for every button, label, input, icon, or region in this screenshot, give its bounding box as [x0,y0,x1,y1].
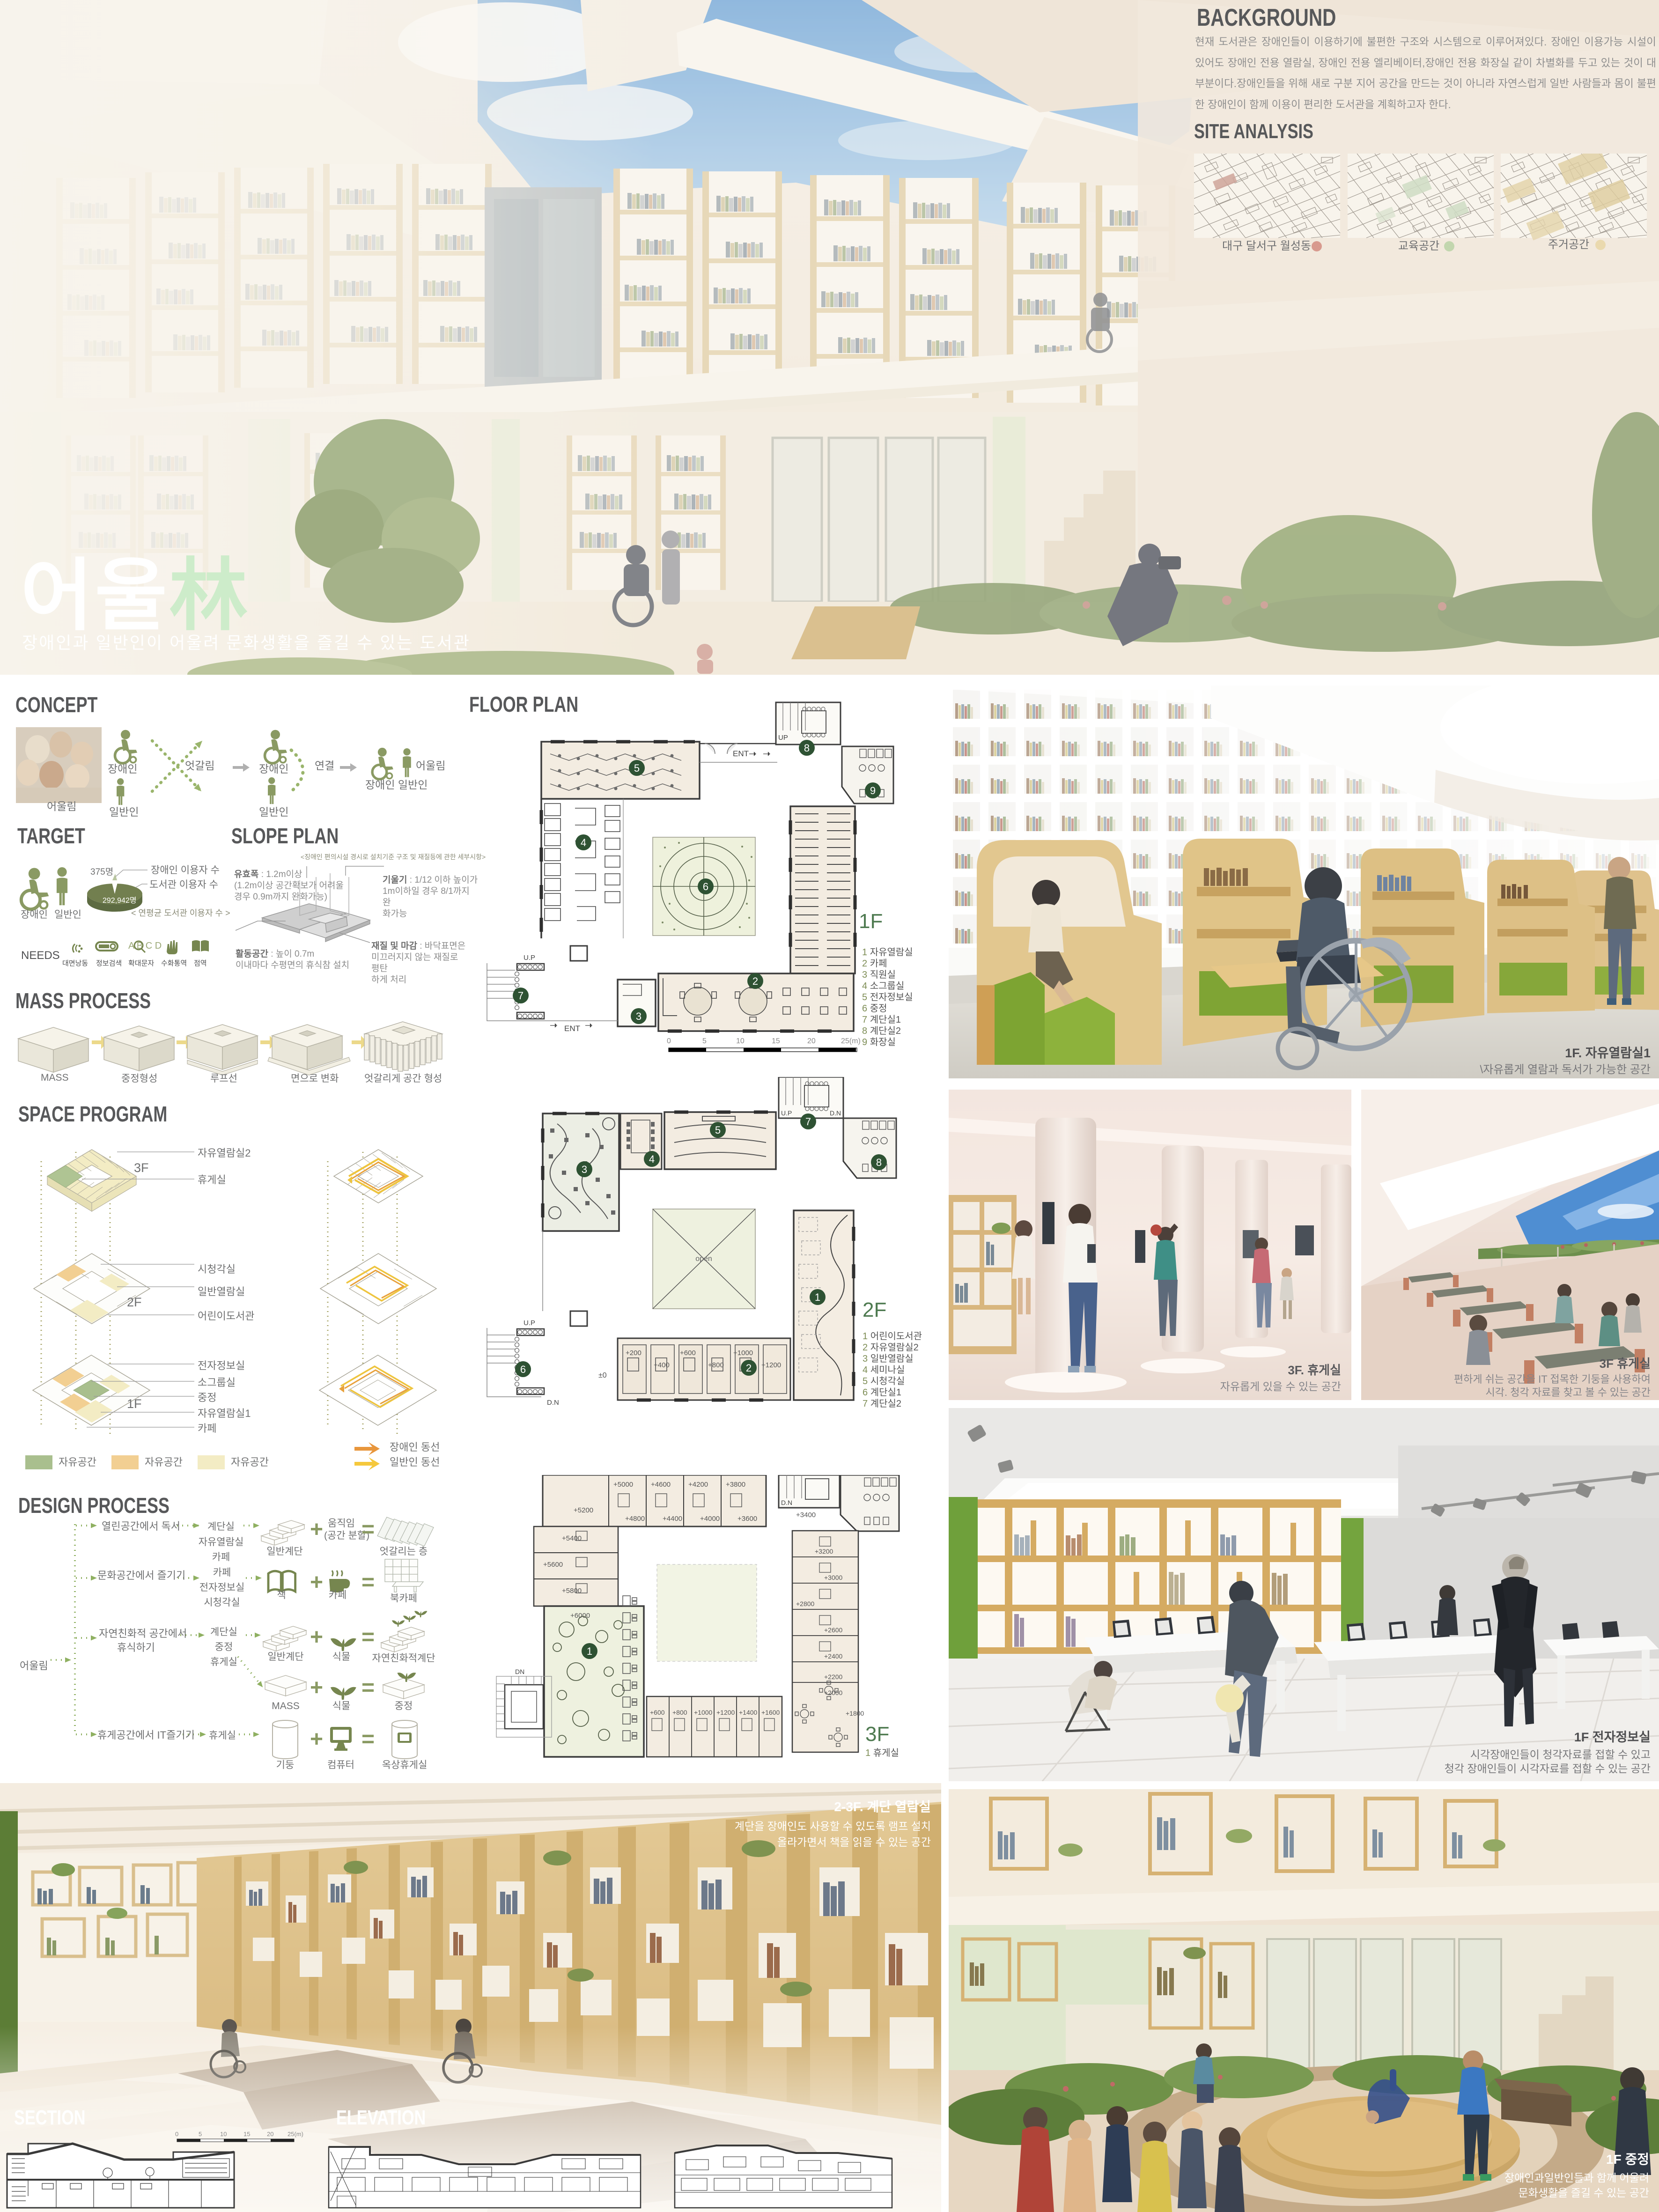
svg-text:+3600: +3600 [737,1515,757,1523]
svg-text:3F: 3F [865,1723,889,1746]
svg-text:9 화장실: 9 화장실 [862,1037,896,1047]
svg-text:휴식하기: 휴식하기 [117,1642,155,1653]
svg-text:어울림: 어울림 [416,759,445,772]
svg-text:375명: 375명 [90,867,113,877]
svg-text:+1800: +1800 [846,1710,864,1717]
svg-text:+1400: +1400 [739,1709,758,1716]
svg-text:열린공간에서 독서: 열린공간에서 독서 [102,1520,180,1532]
svg-text:3: 3 [636,1010,641,1022]
svg-text:10: 10 [220,2131,227,2138]
svg-text:+2600: +2600 [824,1626,843,1634]
svg-text:+200: +200 [626,1349,641,1357]
svg-text:+5000: +5000 [613,1481,633,1489]
svg-text:시청각실: 시청각실 [204,1597,240,1608]
svg-text:자연친화적계단: 자연친화적계단 [372,1653,435,1664]
svg-text:움직임: 움직임 [328,1518,355,1529]
svg-text:+4600: +4600 [651,1481,671,1489]
svg-text:+2800: +2800 [796,1600,815,1607]
svg-text:자연친화적 공간에서: 자연친화적 공간에서 [99,1628,187,1639]
svg-text:계단실: 계단실 [207,1521,235,1532]
svg-text:+: + [310,1625,323,1650]
svg-text:+600: +600 [650,1709,665,1716]
svg-text:< 연평균 도서관 이용자 수 >: < 연평균 도서관 이용자 수 > [131,908,230,918]
svg-text:중정형성: 중정형성 [121,1073,157,1084]
svg-text:장애인: 장애인 [21,909,48,920]
svg-text:식물: 식물 [332,1652,351,1662]
svg-text:중정: 중정 [198,1392,216,1403]
svg-text:2-3F. 계단 열람실: 2-3F. 계단 열람실 [834,1799,931,1814]
svg-text:4 소그룹실: 4 소그룹실 [862,981,904,991]
svg-text:NEEDS: NEEDS [21,949,60,962]
svg-text:연결: 연결 [315,759,334,772]
svg-text:계단을 장애인도 사용할 수 있도록 램프 설치: 계단을 장애인도 사용할 수 있도록 램프 설치 [735,1820,931,1832]
svg-text:+4800: +4800 [625,1515,645,1523]
svg-text:카페: 카페 [198,1423,216,1434]
svg-text:3: 3 [582,1164,587,1175]
svg-text:자유롭게 있을 수 있는 공간: 자유롭게 있을 수 있는 공간 [1220,1380,1341,1393]
svg-text:엇갈림: 엇갈림 [185,759,214,772]
svg-text:2F: 2F [863,1298,886,1321]
svg-text:+: + [310,1727,323,1752]
svg-text:일반인: 일반인 [54,909,81,920]
svg-text:25(m): 25(m) [288,2131,303,2138]
svg-text:4: 4 [581,837,586,848]
svg-text:어린이도서관: 어린이도서관 [198,1310,254,1322]
svg-text:5: 5 [715,1124,721,1136]
svg-text:올라가면서 책을 읽을 수 있는 공간: 올라가면서 책을 읽을 수 있는 공간 [777,1836,931,1848]
svg-text:엇갈리는 층: 엇갈리는 층 [380,1546,428,1557]
svg-text:3 일반열람실: 3 일반열람실 [863,1353,914,1364]
svg-text:정보검색: 정보검색 [96,959,122,967]
svg-text:5: 5 [634,762,640,774]
svg-text:A B C D: A B C D [128,941,162,951]
svg-text:+1600: +1600 [761,1709,780,1716]
svg-text:MASS: MASS [41,1072,69,1083]
svg-text:+400: +400 [654,1361,670,1369]
svg-text:장애인: 장애인 [108,763,137,775]
svg-text:7: 7 [805,1116,811,1128]
svg-text:8 계단실2: 8 계단실2 [862,1025,901,1036]
svg-text:+2200: +2200 [824,1673,843,1681]
svg-text:문화공간에서 즐기기: 문화공간에서 즐기기 [97,1570,185,1581]
svg-text:자유공간: 자유공간 [59,1456,96,1468]
svg-text:어울림: 어울림 [47,800,76,812]
svg-text:0: 0 [175,2131,178,2138]
svg-text:6: 6 [703,881,708,892]
svg-text:1: 1 [587,1645,592,1657]
svg-text:1F 중정: 1F 중정 [1606,2152,1649,2167]
svg-text:식물: 식물 [332,1701,351,1711]
svg-text:=: = [361,1570,375,1595]
svg-text:일반인: 일반인 [259,806,288,818]
svg-text:1F. 자유열람실1: 1F. 자유열람실1 [1565,1046,1651,1060]
svg-text:20: 20 [267,2131,273,2138]
svg-text:2: 2 [752,975,758,987]
svg-text:어울림: 어울림 [20,1660,48,1672]
svg-text:+: + [310,1675,323,1700]
svg-text:20: 20 [807,1037,816,1045]
svg-text:3F: 3F [134,1161,149,1175]
svg-text:5: 5 [199,2131,202,2138]
svg-text:+5800: +5800 [562,1587,582,1595]
svg-text:\자유롭게 열람과 독서가 가능한 공간: \자유롭게 열람과 독서가 가능한 공간 [1480,1063,1651,1076]
svg-text:6: 6 [520,1364,526,1375]
svg-text:U.P: U.P [781,1109,792,1117]
svg-text:자유열람실1: 자유열람실1 [198,1408,251,1419]
svg-text:U.P: U.P [524,954,535,962]
svg-text:+1200: +1200 [761,1361,781,1369]
svg-text:1F: 1F [859,910,883,933]
svg-text:1 자유열람실: 1 자유열람실 [862,947,913,958]
svg-text:1 휴게실: 1 휴게실 [865,1747,899,1758]
svg-text:확대문자: 확대문자 [128,959,154,967]
svg-text:2: 2 [746,1362,752,1374]
svg-text:자유열람실2: 자유열람실2 [198,1147,251,1159]
svg-text:자유공간: 자유공간 [145,1456,183,1468]
svg-text:MASS: MASS [272,1701,300,1711]
svg-text:2F: 2F [127,1295,142,1309]
svg-text:+5600: +5600 [543,1561,563,1569]
svg-text:8: 8 [804,742,810,754]
svg-text:=: = [361,1727,375,1752]
svg-text:자유공간: 자유공간 [231,1456,269,1468]
svg-text:중정: 중정 [215,1642,233,1652]
svg-text:7 계단실2: 7 계단실2 [863,1398,901,1409]
svg-text:3 직원실: 3 직원실 [862,969,896,980]
svg-text:+1000: +1000 [694,1709,713,1716]
svg-text:+3400: +3400 [796,1511,816,1519]
svg-text:5 시청각실: 5 시청각실 [863,1376,905,1386]
svg-text:편하게 쉬는 공간을 IT 접목한 기둥을 사용하여: 편하게 쉬는 공간을 IT 접목한 기둥을 사용하여 [1454,1373,1651,1385]
svg-text:장애인 일반인: 장애인 일반인 [365,779,428,791]
svg-text:장애인 동선: 장애인 동선 [390,1441,440,1453]
svg-text:휴게실: 휴게실 [210,1657,237,1667]
svg-text:5: 5 [702,1037,707,1045]
svg-text:카페: 카페 [212,1552,230,1563]
svg-text:+6000: +6000 [570,1612,590,1620]
svg-text:10: 10 [736,1037,745,1045]
svg-text:+4000: +4000 [700,1515,720,1523]
svg-text:일반인: 일반인 [109,806,139,818]
svg-text:옥상휴게실: 옥상휴게실 [382,1760,428,1770]
svg-text:+: + [310,1570,323,1595]
svg-text:시각. 청각 자료를 찾고 볼 수 있는 공간: 시각. 청각 자료를 찾고 볼 수 있는 공간 [1486,1386,1651,1398]
svg-text:4: 4 [649,1153,655,1165]
svg-text:컴퓨터: 컴퓨터 [327,1760,354,1770]
svg-text:책: 책 [277,1590,286,1600]
svg-text:일반열람실: 일반열람실 [198,1286,245,1298]
svg-text:1F: 1F [127,1397,142,1411]
svg-text:주거공간: 주거공간 [1548,238,1589,251]
svg-text:ENT: ENT [564,1024,580,1033]
svg-text:open: open [695,1255,712,1263]
svg-text:루프선: 루프선 [210,1073,237,1084]
svg-text:4 세미나실: 4 세미나실 [863,1364,905,1375]
svg-text:=: = [361,1517,375,1542]
svg-text:+3800: +3800 [726,1481,745,1489]
svg-text:+3200: +3200 [815,1548,833,1555]
svg-text:15: 15 [772,1037,780,1045]
svg-text:2 카페: 2 카페 [862,958,887,969]
svg-text:시각장애인들이 청각자료를 접할 수 있고: 시각장애인들이 청각자료를 접할 수 있고 [1470,1748,1651,1761]
svg-text:일반계단: 일반계단 [267,1652,303,1662]
svg-text:휴게공간에서 IT즐기기: 휴게공간에서 IT즐기기 [97,1729,195,1741]
svg-text:7: 7 [518,990,524,1002]
svg-text:교육공간: 교육공간 [1398,240,1439,252]
svg-text:장애인과일반인들과 함께 어울려: 장애인과일반인들과 함께 어울려 [1504,2172,1649,2184]
svg-text:문화생활을 즐길 수 있는 공간: 문화생활을 즐길 수 있는 공간 [1519,2187,1649,2199]
svg-text:대면낭동: 대면낭동 [62,959,88,967]
svg-text:중정: 중정 [395,1701,413,1711]
svg-text:D.N: D.N [547,1399,559,1407]
svg-text:=: = [361,1625,375,1650]
svg-text:카페: 카페 [329,1590,347,1600]
svg-text:대구 달서구 월성동: 대구 달서구 월성동 [1222,240,1311,252]
svg-text:+2400: +2400 [824,1652,843,1660]
svg-text:8: 8 [876,1157,882,1168]
svg-text:도서관 이용자 수: 도서관 이용자 수 [149,879,218,890]
svg-text:+4400: +4400 [663,1515,682,1523]
svg-text:휴게실: 휴게실 [209,1730,236,1741]
svg-text:UP: UP [778,734,788,742]
svg-text:기둥: 기둥 [276,1760,295,1770]
svg-text:+2000: +2000 [824,1689,843,1696]
svg-text:+4200: +4200 [688,1481,708,1489]
svg-text:25(m): 25(m) [841,1037,861,1045]
svg-text:1 어린이도서관: 1 어린이도서관 [863,1331,922,1342]
svg-text:엇갈리게 공간 형성: 엇갈리게 공간 형성 [364,1073,442,1084]
svg-text:계단실: 계단실 [210,1627,237,1637]
svg-text:+1200: +1200 [716,1709,735,1716]
svg-text:북카페: 북카페 [390,1593,417,1604]
svg-text:+5200: +5200 [574,1506,593,1514]
svg-text:시청각실: 시청각실 [198,1263,236,1275]
svg-text:3F. 휴게실: 3F. 휴게실 [1288,1363,1341,1377]
svg-text:ENT: ENT [733,749,749,758]
svg-text:전자정보실: 전자정보실 [199,1582,245,1593]
svg-text:자유열람실: 자유열람실 [199,1537,244,1548]
svg-text:3F 휴게실: 3F 휴게실 [1600,1357,1651,1371]
svg-text:6 중정: 6 중정 [862,1003,887,1014]
svg-text:+5400: +5400 [562,1534,582,1542]
svg-text:점역: 점역 [194,959,207,967]
svg-text:+800: +800 [672,1709,687,1716]
svg-text:±0: ±0 [598,1371,607,1379]
svg-text:2 자유열람실2: 2 자유열람실2 [863,1342,919,1353]
svg-text:장애인 이용자 수: 장애인 이용자 수 [151,865,220,876]
svg-text:15: 15 [243,2131,250,2138]
svg-text:0: 0 [667,1037,671,1045]
svg-text:+1000: +1000 [733,1349,753,1357]
svg-text:7 계단실1: 7 계단실1 [862,1014,901,1025]
svg-text:+3000: +3000 [824,1574,843,1581]
svg-text:전자정보실: 전자정보실 [198,1360,245,1371]
svg-text:DN: DN [515,1668,524,1675]
svg-text:D.N: D.N [830,1109,841,1117]
svg-text:면으로 변화: 면으로 변화 [291,1073,339,1084]
svg-text:+: + [310,1517,323,1542]
svg-text:카페: 카페 [213,1567,231,1578]
svg-text:6 계단실1: 6 계단실1 [863,1387,901,1398]
svg-text:D.N: D.N [781,1499,792,1506]
svg-text:일반계단: 일반계단 [266,1546,302,1557]
svg-text:수화통역: 수화통역 [161,959,187,967]
svg-text:+800: +800 [708,1361,724,1369]
svg-text:장애인: 장애인 [259,763,288,775]
svg-text:5 전자정보실: 5 전자정보실 [862,992,913,1003]
svg-text:+600: +600 [680,1349,696,1357]
svg-text:9: 9 [870,785,876,796]
svg-text:1: 1 [815,1291,820,1303]
svg-text:=: = [361,1675,375,1700]
svg-text:소그룹실: 소그룹실 [198,1377,236,1388]
svg-text:1F 전자정보실: 1F 전자정보실 [1574,1730,1651,1744]
svg-text:U.P: U.P [524,1319,535,1327]
svg-text:휴게실: 휴게실 [198,1174,226,1186]
svg-text:청각 장애인들이 시각자료를 접할 수 있는 공간: 청각 장애인들이 시각자료를 접할 수 있는 공간 [1445,1762,1651,1775]
svg-text:일반인 동선: 일반인 동선 [390,1456,440,1468]
svg-text:292,942명: 292,942명 [103,896,137,905]
